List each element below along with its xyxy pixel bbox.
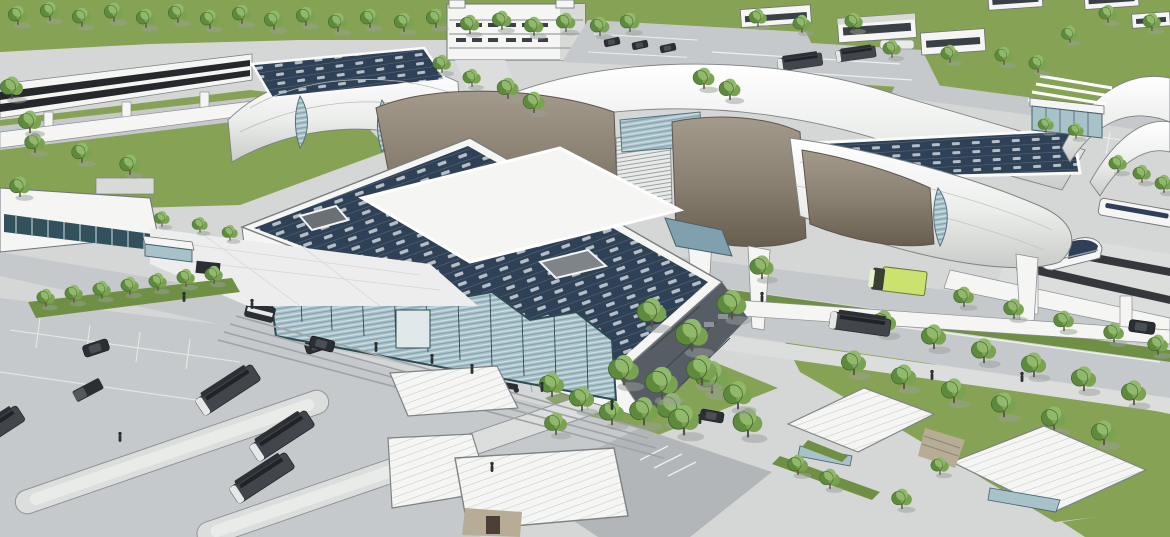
- stair-tower: [449, 0, 465, 8]
- entrance-doors: [396, 310, 430, 348]
- stair-tower: [556, 0, 574, 8]
- doorway: [486, 516, 500, 534]
- pavilion-roof: [390, 366, 518, 416]
- scene-canvas: [0, 0, 1170, 537]
- back-building: [96, 178, 154, 194]
- architectural-rendering: Aerial rendering of an elevated rail sta…: [0, 0, 1170, 537]
